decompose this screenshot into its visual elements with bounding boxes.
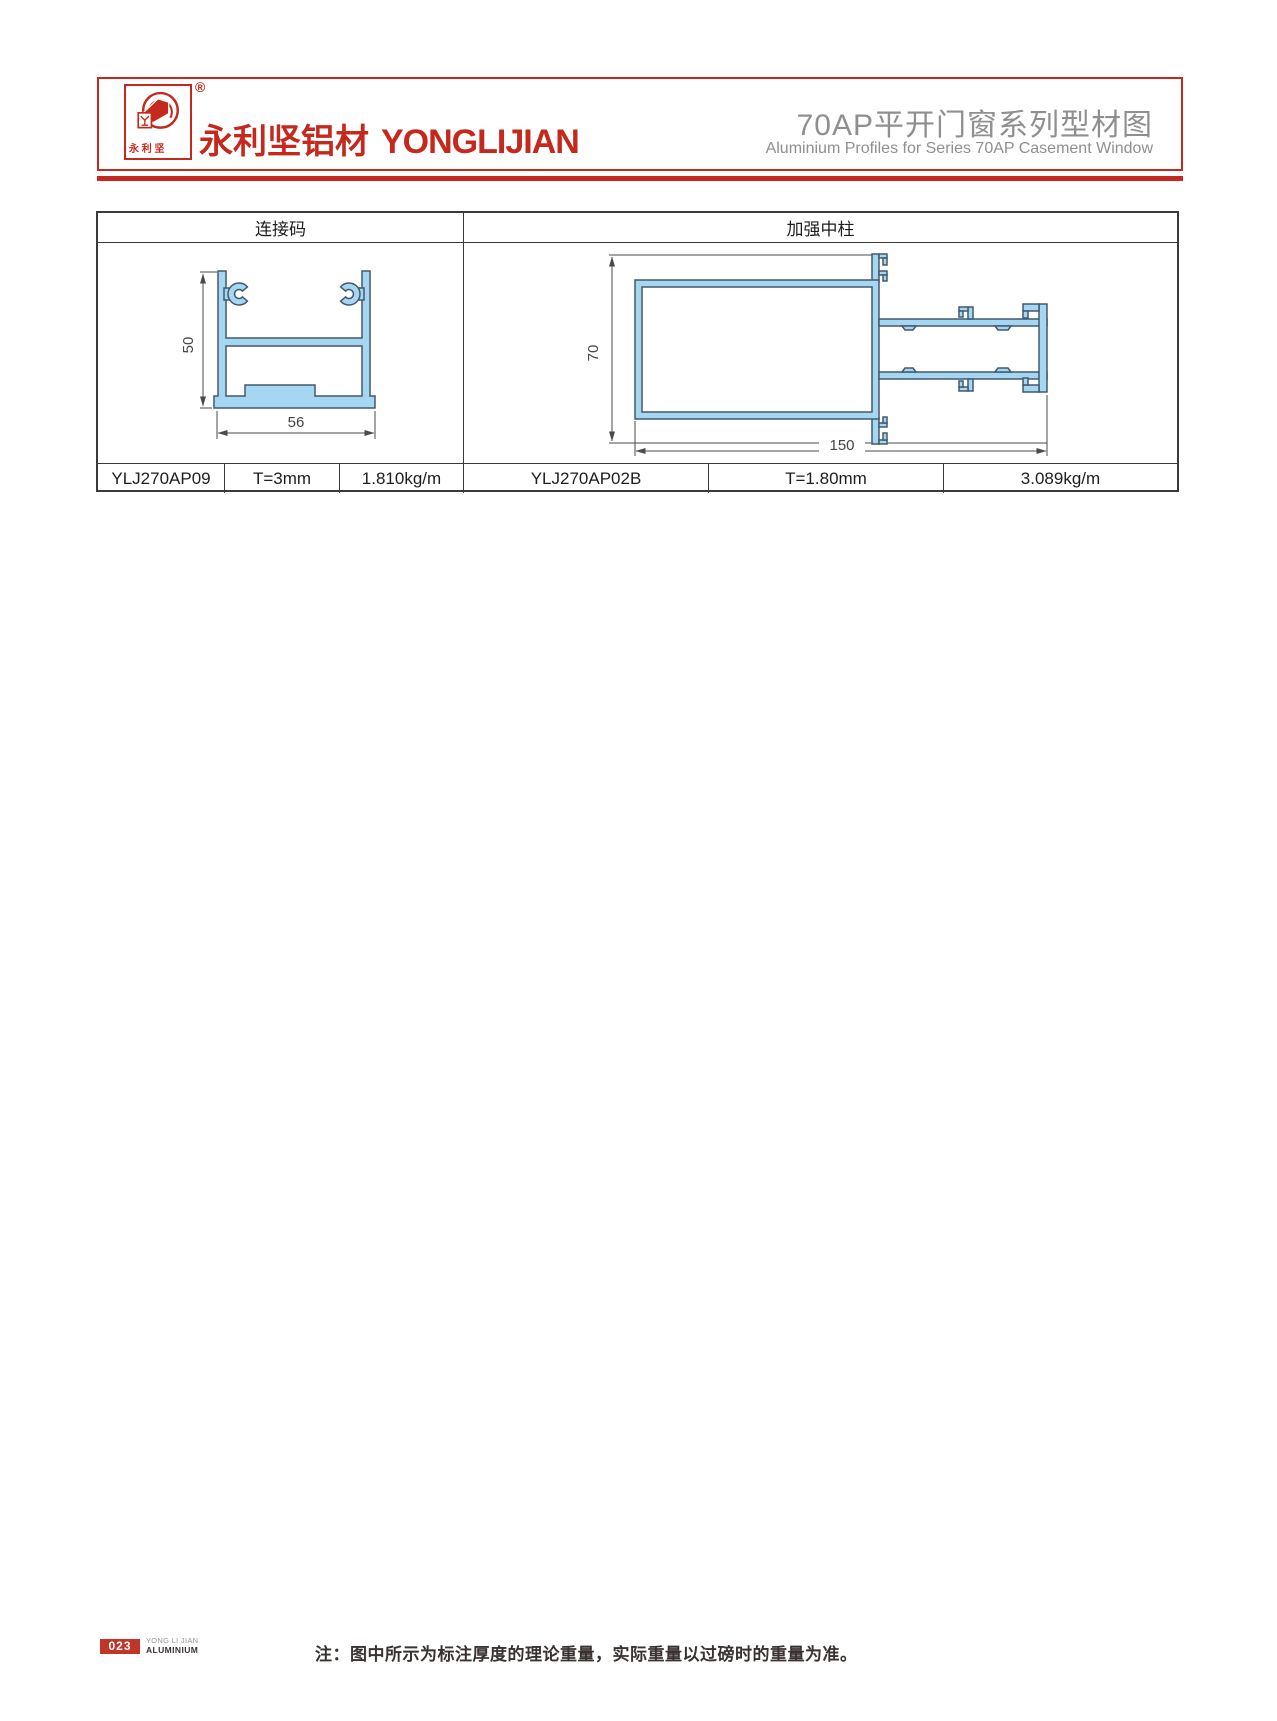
spec-weight-mullion: 3.089kg/m bbox=[944, 464, 1177, 493]
profile-drawing-connector: 50 56 bbox=[98, 243, 462, 463]
column-header-mullion: 加强中柱 bbox=[464, 213, 1177, 243]
page-title: 70AP平开门窗系列型材图 bbox=[797, 100, 1153, 144]
spec-thickness-mullion: T=1.80mm bbox=[709, 464, 944, 493]
drawing-cell-mullion: 150 70 bbox=[464, 243, 1177, 464]
header-divider-bar bbox=[97, 176, 1183, 181]
table-drawing-row: 50 56 bbox=[98, 243, 1177, 464]
spec-code-connector: YLJ270AP09 bbox=[98, 464, 225, 493]
table-spec-row: YLJ270AP09 T=3mm 1.810kg/m YLJ270AP02B T… bbox=[98, 464, 1177, 493]
profile-table: 连接码 加强中柱 bbox=[96, 211, 1179, 492]
profile-drawing-mullion: 150 70 bbox=[464, 243, 1177, 463]
column-header-connector: 连接码 bbox=[98, 213, 464, 243]
footer-note: 注：图中所示为标注厚度的理论重量，实际重量以过磅时的重量为准。 bbox=[315, 1640, 858, 1665]
dim-label-width-mullion: 150 bbox=[829, 437, 854, 454]
logo-characters: 永 利 坚 bbox=[129, 145, 187, 155]
dim-label-height-mullion: 70 bbox=[585, 345, 602, 362]
registered-trademark-icon: ® bbox=[195, 79, 205, 95]
dim-label-width-connector: 56 bbox=[288, 414, 305, 431]
mullion-profile-shape bbox=[635, 254, 1047, 444]
brand-logo: 永 利 坚 bbox=[124, 84, 192, 160]
brand-name: 永利坚铝材YONGLIJIAN bbox=[199, 114, 579, 163]
footer-brand-line1: YONG LI JIAN bbox=[146, 1637, 198, 1645]
spec-weight-connector: 1.810kg/m bbox=[340, 464, 464, 493]
dim-label-height-connector: 50 bbox=[180, 337, 197, 354]
table-header-row: 连接码 加强中柱 bbox=[98, 213, 1177, 243]
connector-profile-shape bbox=[214, 271, 375, 408]
page-subtitle: Aluminium Profiles for Series 70AP Casem… bbox=[766, 140, 1153, 158]
footer-brand: YONG LI JIAN ALUMINIUM bbox=[146, 1637, 198, 1654]
brand-name-chinese: 永利坚铝材 bbox=[199, 123, 369, 161]
brand-name-english: YONGLIJIAN bbox=[381, 123, 579, 161]
page-number-badge: 023 bbox=[100, 1639, 140, 1654]
spec-thickness-connector: T=3mm bbox=[225, 464, 340, 493]
catalog-page: 永 利 坚 ® 永利坚铝材YONGLIJIAN 70AP平开门窗系列型材图 Al… bbox=[0, 0, 1277, 1721]
spec-code-mullion: YLJ270AP02B bbox=[464, 464, 709, 493]
logo-symbol-icon bbox=[130, 88, 186, 136]
footer-brand-line2: ALUMINIUM bbox=[146, 1646, 198, 1654]
drawing-cell-connector: 50 56 bbox=[98, 243, 464, 464]
